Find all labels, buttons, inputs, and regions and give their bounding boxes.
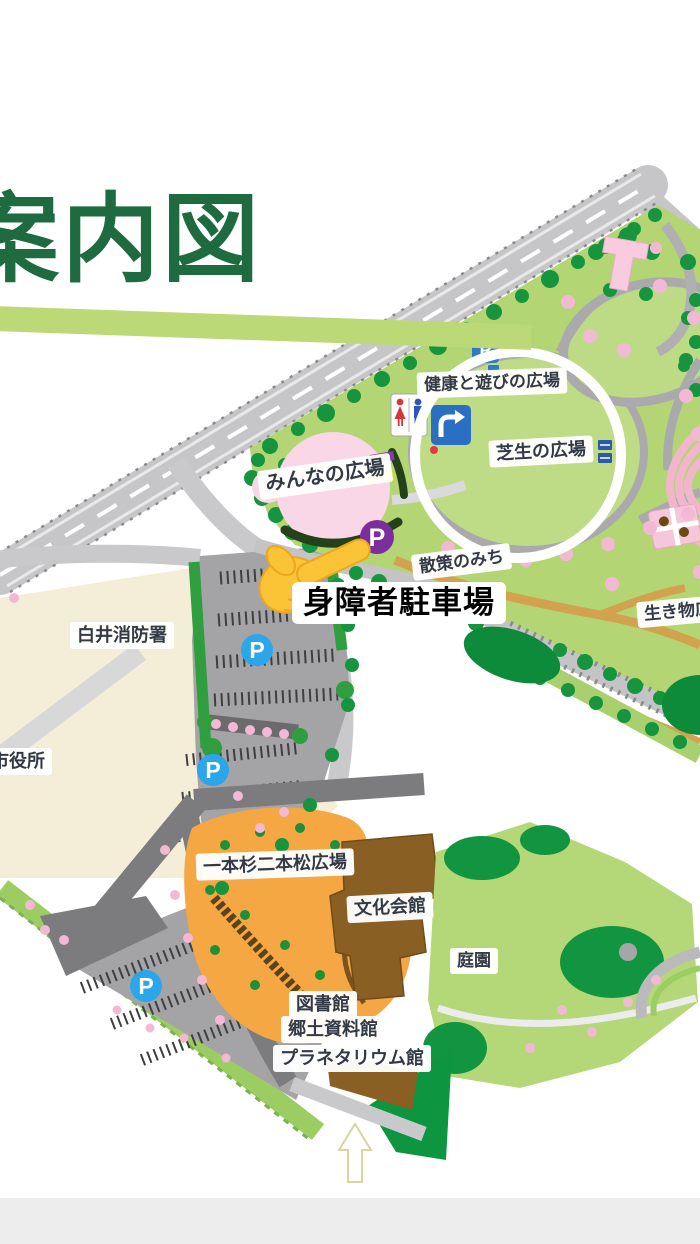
bottom-strip — [0, 1198, 700, 1244]
label-ippon-sugi-plaza: 一本杉二本松広場 — [196, 848, 355, 880]
label-library: 図書館 — [289, 991, 357, 1018]
page-title: 案内図 — [0, 160, 262, 301]
parking-p-icon: P — [249, 637, 264, 663]
accessible-parking-callout: 身障者駐車場 — [292, 582, 506, 624]
label-health-play-plaza: 健康と遊びの広場 — [417, 367, 568, 398]
label-fire-station: 白井消防署 — [70, 622, 174, 649]
parking-p-icon: P — [138, 973, 153, 999]
label-city-hall: 市役所 — [0, 748, 52, 775]
entrance-arrow-icon — [339, 1124, 371, 1182]
label-local-museum: 郷土資料館 — [281, 1016, 385, 1043]
svg-text:P: P — [369, 524, 386, 552]
label-culture-hall: 文化会館 — [346, 892, 433, 923]
label-garden: 庭園 — [450, 948, 498, 974]
parking-p-icon: P — [205, 757, 220, 783]
entrance-arrow-sign-icon — [431, 405, 471, 445]
label-lawn-plaza: 芝生の広場 — [488, 435, 593, 467]
guide-map-page: { "page": { "title": "案内図" }, "map": { "… — [0, 0, 700, 1244]
label-planetarium: プラネタリウム館 — [273, 1045, 431, 1072]
